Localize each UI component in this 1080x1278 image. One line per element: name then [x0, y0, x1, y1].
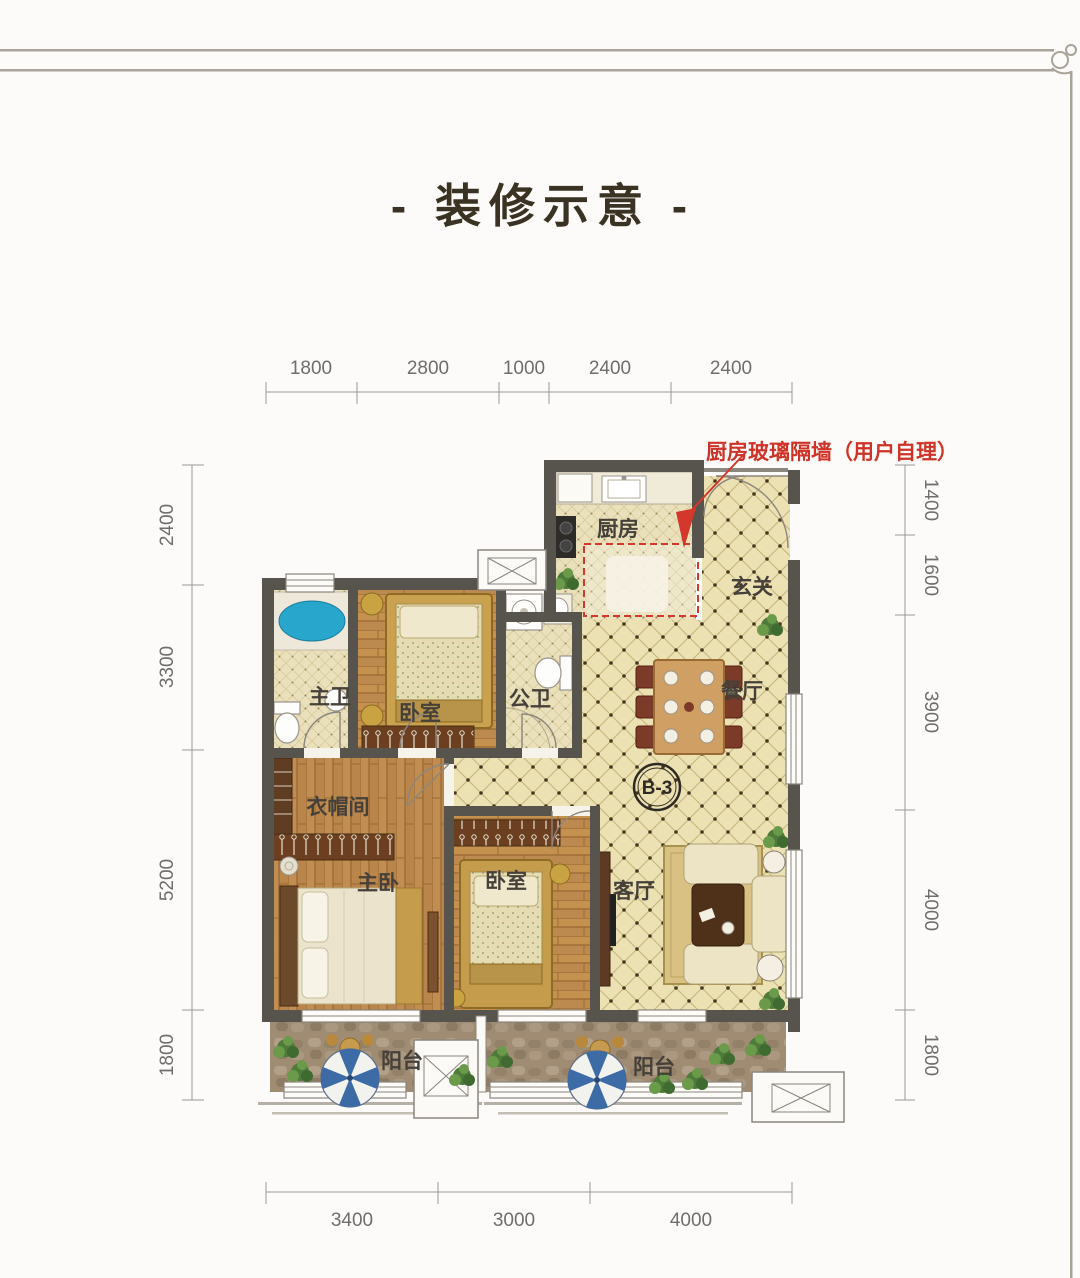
annotation-text: 厨房玻璃隔墙（用户自理） — [706, 440, 958, 464]
sofa — [684, 844, 758, 884]
umbrella-icon — [321, 1049, 379, 1107]
dimensions-top: 1800 2800 1000 2400 2400 — [266, 358, 792, 404]
patio-chair — [326, 1034, 338, 1046]
bathtub — [279, 601, 345, 641]
sofa — [684, 944, 758, 984]
label-living: 客厅 — [613, 879, 655, 903]
dim-top-4: 2400 — [589, 358, 631, 379]
dim-top-3: 1000 — [503, 358, 545, 379]
label-dining: 餐厅 — [721, 679, 763, 703]
dim-bottom-3: 4000 — [670, 1210, 712, 1231]
floor-plan-canvas: - 装修示意 - — [0, 0, 1080, 1278]
dim-top-2: 2800 — [407, 358, 449, 379]
window — [286, 574, 334, 592]
toilet — [535, 656, 572, 690]
toilet — [274, 702, 300, 743]
dim-bottom-2: 3000 — [493, 1210, 535, 1231]
patio-chair — [576, 1036, 588, 1048]
floor-plan-page: - 装修示意 - — [0, 0, 1080, 1278]
dim-right-3: 3900 — [920, 691, 941, 733]
bed-bench — [428, 912, 438, 992]
kitchen-sink — [602, 476, 646, 503]
side-table — [757, 955, 783, 981]
ac-platform — [752, 1072, 844, 1122]
flue-duct — [478, 550, 546, 590]
dimensions-right: 1400 1600 3900 4000 1800 — [895, 465, 941, 1100]
frame-right-line — [1070, 71, 1073, 1278]
kitchen-cabinet — [558, 474, 592, 502]
patio-chair — [362, 1034, 374, 1046]
frame-top-line-1 — [0, 49, 1054, 52]
bed-footboard — [470, 964, 542, 984]
dim-bottom-1: 3400 — [331, 1210, 373, 1231]
dim-right-4: 4000 — [920, 889, 941, 931]
balcony-right-floor — [484, 1016, 786, 1092]
label-master-bath: 主卫 — [309, 686, 351, 709]
sofa — [752, 876, 790, 952]
bed-headboard — [280, 886, 298, 1006]
label-balcony-left: 阳台 — [381, 1049, 423, 1073]
nightstand — [361, 593, 383, 615]
dimensions-left: 2400 3300 5200 1800 — [157, 465, 204, 1100]
stool — [280, 857, 298, 875]
umbrella-icon — [568, 1051, 626, 1109]
label-bedroom-top: 卧室 — [399, 701, 441, 725]
bed-pillows — [400, 606, 478, 638]
label-balcony-right: 阳台 — [633, 1055, 675, 1079]
entry-floor — [702, 476, 790, 622]
dim-left-3: 5200 — [157, 859, 178, 901]
hallway-floor — [452, 758, 790, 812]
dim-left-4: 1800 — [157, 1034, 178, 1076]
unit-label: B-3 — [642, 778, 673, 799]
dim-top-5: 2400 — [710, 358, 752, 379]
frame-ornament — [1052, 45, 1076, 73]
cooktop — [556, 516, 576, 558]
frame-top-line-2 — [0, 69, 1054, 72]
side-table — [763, 851, 785, 873]
balcony-sliding-doors — [302, 1010, 706, 1022]
patio-chair — [612, 1036, 624, 1048]
label-kitchen: 厨房 — [597, 517, 639, 541]
dining-set — [636, 660, 742, 754]
label-cloakroom: 衣帽间 — [307, 795, 370, 819]
dim-left-2: 3300 — [157, 646, 178, 688]
nightstand — [361, 705, 383, 727]
window — [786, 694, 802, 784]
bed-throw — [396, 888, 422, 1004]
nightstand — [550, 864, 570, 884]
pillow — [302, 892, 328, 942]
dim-left-1: 2400 — [157, 504, 178, 546]
dim-right-2: 1600 — [920, 554, 941, 596]
label-entry: 玄关 — [731, 575, 773, 599]
pillow — [302, 948, 328, 998]
dim-top-1: 1800 — [290, 358, 332, 379]
dim-right-1: 1400 — [920, 479, 941, 521]
label-master-bedroom: 主卧 — [357, 872, 399, 895]
dim-right-5: 1800 — [920, 1034, 941, 1076]
dimensions-bottom: 3400 3000 4000 — [266, 1182, 792, 1231]
table-item — [722, 922, 734, 934]
kitchen-glass-partition — [584, 544, 698, 616]
label-public-bath: 公卫 — [509, 688, 551, 711]
label-bedroom-mid: 卧室 — [485, 869, 527, 893]
page-title: - 装修示意 - — [391, 180, 695, 232]
hanging-rack — [272, 834, 394, 860]
entry-top-line — [704, 468, 788, 472]
wardrobe — [452, 820, 560, 846]
window — [786, 850, 802, 998]
